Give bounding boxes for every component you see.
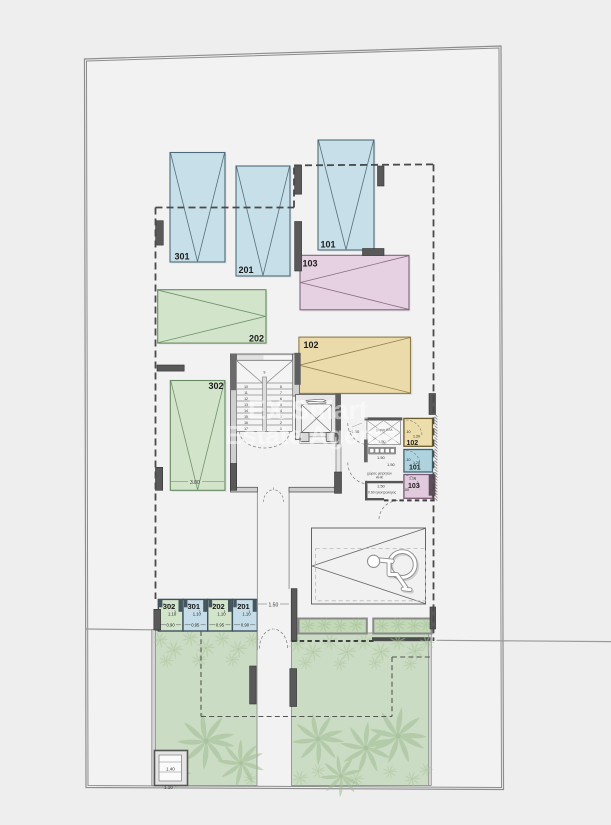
svg-text:201: 201 [237,602,250,611]
svg-text:1.40: 1.40 [166,767,175,772]
svg-text:1.20: 1.20 [413,461,420,465]
svg-text:301: 301 [188,602,201,611]
svg-text:0.95: 0.95 [216,623,225,628]
svg-text:0.90: 0.90 [241,623,250,628]
svg-text:202: 202 [249,334,264,344]
svg-text:1.50: 1.50 [387,462,396,467]
svg-text:302: 302 [163,602,176,611]
svg-text:201: 201 [239,265,254,275]
svg-text:1.50: 1.50 [377,455,386,460]
svg-text:102: 102 [407,440,419,447]
svg-text:1.10: 1.10 [193,612,202,617]
svg-text:1.10: 1.10 [217,612,226,617]
svg-text:1.10: 1.10 [409,477,416,481]
svg-text:0.90: 0.90 [167,623,176,628]
svg-text:.10: .10 [406,430,411,434]
svg-text:9: 9 [264,371,266,375]
svg-text:0.95: 0.95 [191,623,200,628]
svg-text:8: 8 [280,385,282,389]
svg-text:202: 202 [212,602,225,611]
svg-text:10: 10 [244,385,248,389]
svg-text:0.60 ηλεκτρολόγος: 0.60 ηλεκτρολόγος [368,491,397,495]
svg-text:.10: .10 [406,458,411,462]
svg-text:101: 101 [321,240,336,250]
svg-text:.00: .00 [404,488,409,492]
svg-text:1.10: 1.10 [168,612,177,617]
svg-text:1.50: 1.50 [377,484,386,489]
svg-text:302: 302 [209,381,224,391]
svg-text:1.20: 1.20 [413,435,420,439]
svg-text:102: 102 [304,340,319,350]
svg-text:103: 103 [303,259,318,269]
svg-text:ΑΗΚ: ΑΗΚ [376,476,384,480]
svg-text:3.00: 3.00 [190,480,200,486]
svg-text:1.50: 1.50 [269,602,279,608]
svg-text:1.10: 1.10 [164,785,173,790]
svg-text:103: 103 [408,483,420,490]
svg-text:301: 301 [175,252,190,262]
svg-text:1.10: 1.10 [242,612,251,617]
svg-text:101: 101 [409,465,421,472]
svg-text:Estate Agents: Estate Agents [225,420,397,450]
